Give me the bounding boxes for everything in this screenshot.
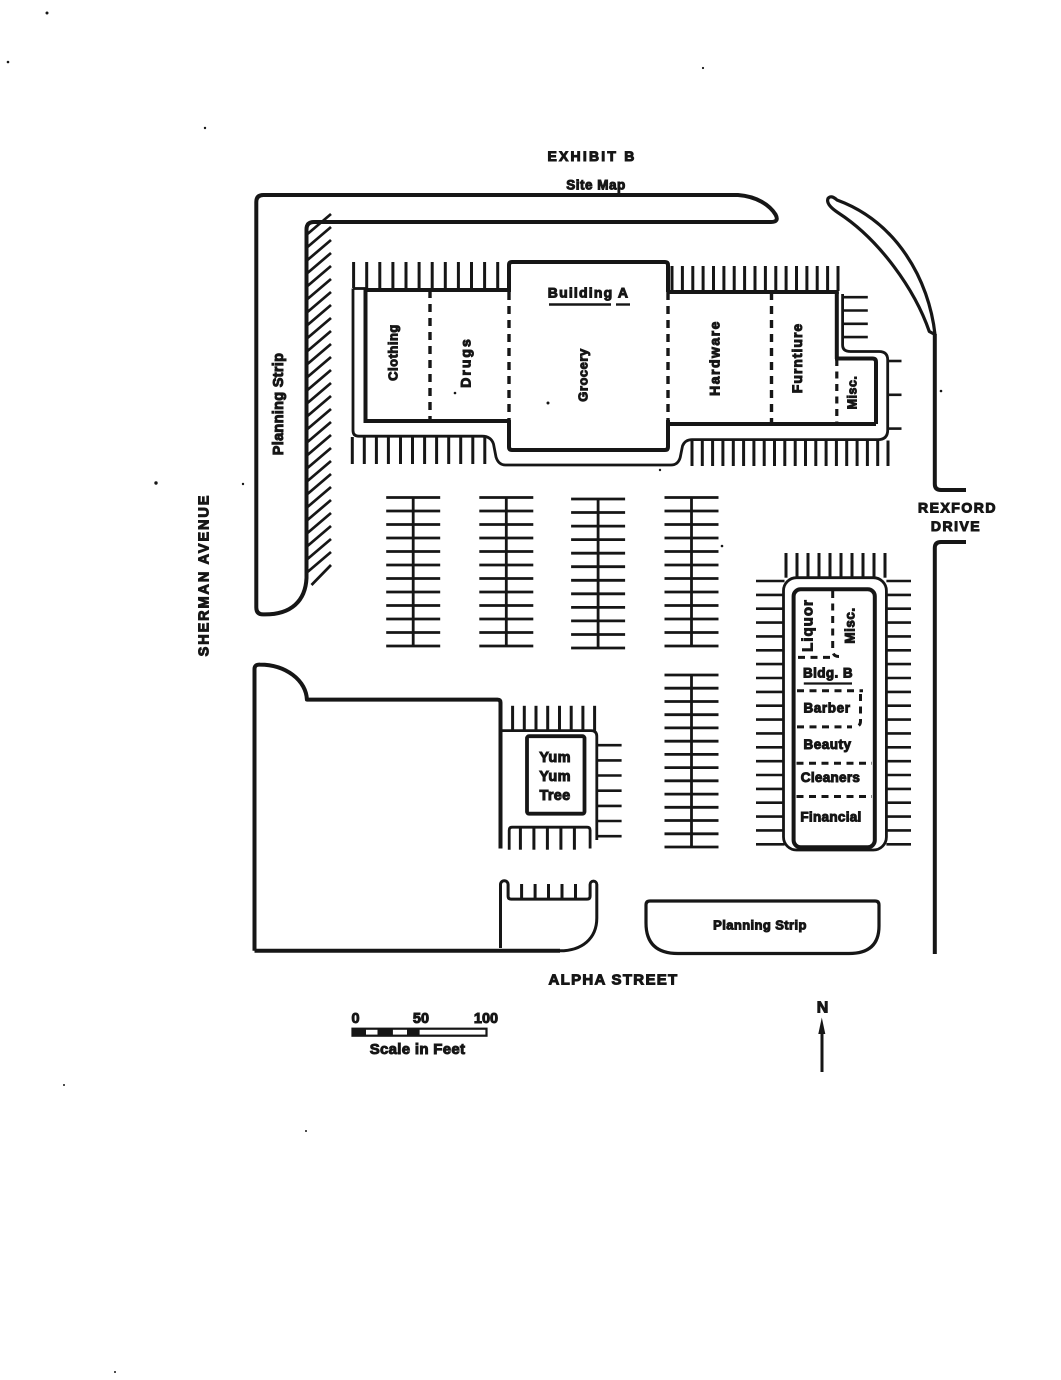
svg-text:Yum: Yum	[539, 750, 571, 766]
svg-text:Misc.: Misc.	[846, 376, 860, 410]
svg-text:Financial: Financial	[800, 809, 861, 824]
svg-text:Yum: Yum	[539, 769, 571, 785]
svg-text:SHERMAN AVENUE: SHERMAN AVENUE	[197, 494, 213, 657]
svg-text:Site Map: Site Map	[566, 178, 626, 193]
svg-text:Hardware: Hardware	[707, 320, 723, 396]
svg-text:Drugs: Drugs	[458, 337, 474, 387]
svg-text:Tree: Tree	[539, 788, 570, 804]
svg-text:ALPHA STREET: ALPHA STREET	[548, 972, 678, 989]
svg-text:Bldg. B: Bldg. B	[803, 666, 853, 681]
svg-text:Barber: Barber	[803, 701, 850, 716]
svg-text:Beauty: Beauty	[803, 737, 851, 752]
svg-text:Planning Strip: Planning Strip	[713, 918, 807, 933]
svg-text:Furntiure: Furntiure	[789, 323, 805, 393]
svg-text:0: 0	[351, 1011, 359, 1027]
svg-text:100: 100	[474, 1011, 498, 1027]
svg-text:EXHIBIT B: EXHIBIT B	[547, 148, 636, 164]
svg-text:Scale in Feet: Scale in Feet	[370, 1041, 466, 1058]
svg-text:DRIVE: DRIVE	[931, 518, 981, 534]
svg-text:Planning Strip: Planning Strip	[271, 353, 287, 455]
svg-text:N: N	[817, 1000, 829, 1017]
svg-text:Misc.: Misc.	[843, 607, 858, 643]
svg-text:Clothing: Clothing	[386, 324, 401, 381]
svg-text:50: 50	[413, 1011, 429, 1027]
svg-text:Grocery: Grocery	[576, 348, 591, 402]
svg-text:Cleaners: Cleaners	[801, 770, 860, 785]
svg-text:REXFORD: REXFORD	[918, 500, 997, 516]
svg-text:Liquor: Liquor	[800, 599, 817, 652]
svg-text:Building A: Building A	[548, 285, 629, 301]
